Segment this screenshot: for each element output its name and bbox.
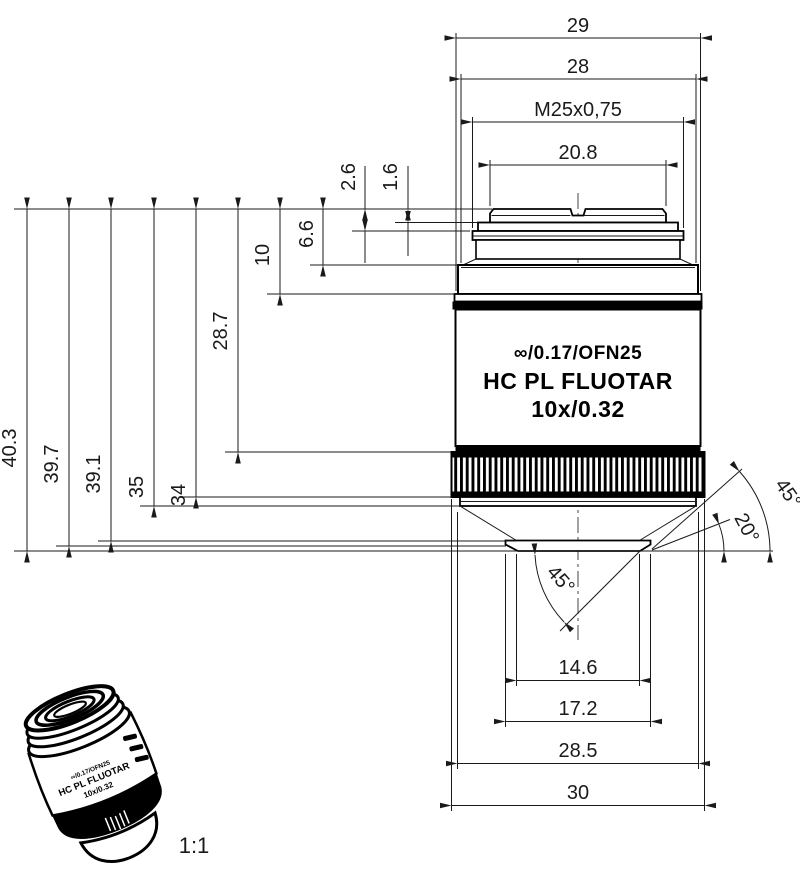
dim-label-28: 28 bbox=[567, 56, 589, 78]
angle-label-20: 20° bbox=[729, 510, 763, 547]
upper-black-band bbox=[453, 302, 703, 310]
dim-label-39-7: 39.7 bbox=[41, 445, 63, 484]
dim-label-40-3: 40.3 bbox=[0, 429, 21, 468]
dim-label-14-6: 14.6 bbox=[559, 657, 598, 679]
dim-label-17-2: 17.2 bbox=[559, 698, 598, 720]
engraving-line-2: HC PL FLUOTAR bbox=[483, 368, 673, 394]
engraving-line-3: 10x/0.32 bbox=[531, 396, 625, 422]
objective-technical-drawing: ∞/0.17/OFN25 HC PL FLUOTAR 10x/0.32 29 2… bbox=[0, 0, 800, 880]
dim-label-29: 29 bbox=[567, 15, 589, 37]
angle-arc-20 bbox=[719, 525, 724, 552]
thread-section bbox=[476, 240, 680, 259]
front-lens-lip bbox=[506, 541, 651, 552]
knurled-grip-ring bbox=[452, 452, 705, 497]
dim-label-thread: M25x0,75 bbox=[534, 99, 622, 121]
cap-base-ring bbox=[478, 223, 678, 232]
dim-label-30: 30 bbox=[567, 782, 589, 804]
shoulder-ridge bbox=[455, 294, 702, 302]
angle-label-45-upper: 45° bbox=[770, 475, 800, 512]
dim-label-28-5: 28.5 bbox=[559, 740, 598, 762]
dim-label-35: 35 bbox=[126, 476, 148, 498]
angle-label-45-bottom: 45° bbox=[542, 561, 579, 598]
dim-label-28-7: 28.7 bbox=[210, 312, 232, 351]
dim-label-10: 10 bbox=[252, 244, 274, 266]
engraving-line-1: ∞/0.17/OFN25 bbox=[514, 343, 642, 364]
upper-collar bbox=[458, 265, 698, 294]
dim-label-39-1: 39.1 bbox=[83, 455, 105, 494]
angle-ray-45-bottom bbox=[560, 551, 640, 631]
dim-label-2-6: 2.6 bbox=[338, 163, 360, 191]
dim-label-6-6: 6.6 bbox=[296, 220, 318, 248]
dim-label-34: 34 bbox=[168, 484, 190, 506]
dim-label-20-8: 20.8 bbox=[559, 142, 598, 164]
objective-3d-thumbnail: ∞/0.17/OFN25 HC PL FLUOTAR 10x/0.32 bbox=[12, 674, 183, 879]
scale-label: 1:1 bbox=[179, 833, 210, 858]
dim-label-1-6: 1.6 bbox=[380, 163, 402, 191]
angle-ray-20 bbox=[652, 520, 730, 551]
